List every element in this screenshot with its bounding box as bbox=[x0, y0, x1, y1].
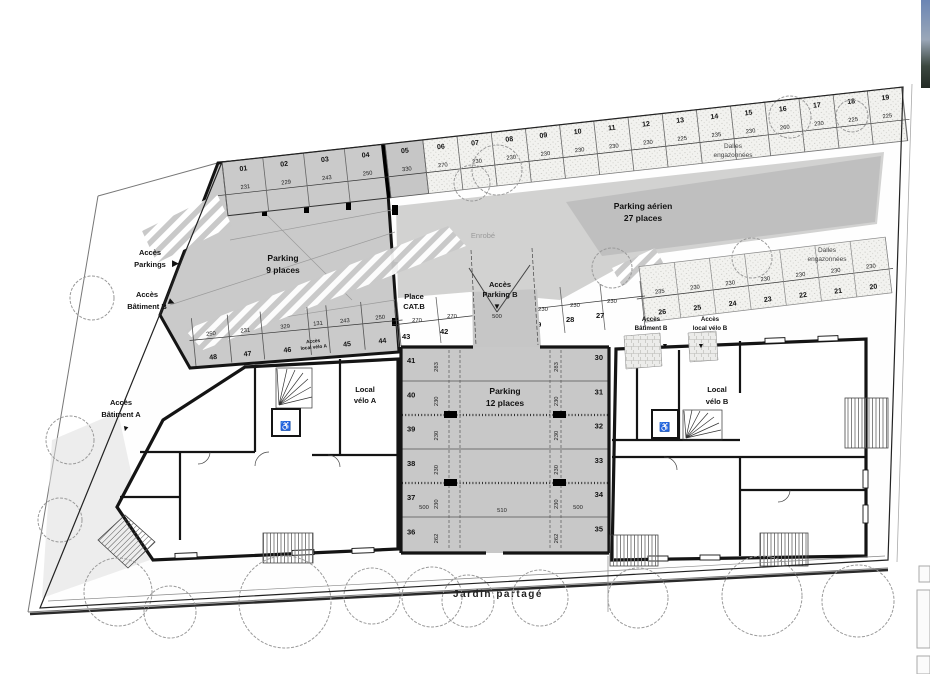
place-catb-label: CAT.B bbox=[403, 302, 425, 311]
parking9-label: Parking bbox=[267, 253, 298, 263]
parking-space-dim: 243 bbox=[322, 175, 332, 182]
parking-space-number: 08 bbox=[505, 136, 514, 144]
acces-batiment-b-arrow-icon: ▼ bbox=[662, 343, 669, 350]
local-velo-a-label: vélo A bbox=[354, 396, 377, 405]
acces-local-velo-b-arrow-icon: ▼ bbox=[698, 343, 705, 350]
parking-space-dim: 231 bbox=[240, 184, 250, 191]
parking-space-dim: 270 bbox=[412, 318, 422, 324]
parking-space-number: 24 bbox=[728, 300, 737, 308]
garage-dim: 500 bbox=[573, 505, 583, 511]
parking-space-dim: 230 bbox=[434, 396, 440, 406]
parking-space-number: 47 bbox=[243, 351, 252, 359]
parking-space-number: 31 bbox=[595, 387, 603, 396]
terrace-b-south-1 bbox=[610, 535, 658, 566]
acces-parkings-label: Accès bbox=[139, 248, 161, 257]
parking-space-dim: 329 bbox=[280, 324, 290, 331]
parking-space-number: 36 bbox=[407, 528, 415, 537]
terrace-b-east bbox=[845, 398, 888, 448]
parking-space-dim: 230 bbox=[575, 147, 585, 154]
parking-space-number: 12 bbox=[642, 121, 651, 129]
parking-space-number: 15 bbox=[744, 109, 753, 117]
parking-space-number: 06 bbox=[437, 143, 446, 151]
parking-space-number: 16 bbox=[779, 106, 788, 114]
parking-space-dim: 131 bbox=[313, 321, 323, 328]
parking-space-dim: 230 bbox=[554, 431, 560, 441]
parking-space-dim: 283 bbox=[554, 362, 560, 372]
place-catb-label: Place bbox=[404, 292, 424, 301]
parking9-label: 9 places bbox=[266, 265, 300, 275]
parking-space-number: 02 bbox=[280, 161, 289, 169]
parking-space-dim: 262 bbox=[554, 534, 560, 544]
parking-aerien-label: Parking aérien bbox=[614, 201, 673, 211]
parking-space-number: 07 bbox=[471, 140, 480, 148]
parking-space-number: 43 bbox=[402, 332, 410, 341]
parking-space-number: 17 bbox=[813, 102, 822, 110]
parking-space-number: 23 bbox=[764, 296, 773, 304]
parking-space-dim: 230 bbox=[554, 499, 560, 509]
parking-space-dim: 260 bbox=[780, 125, 790, 132]
parking-space-dim: 225 bbox=[848, 117, 858, 124]
parking-space-dim: 250 bbox=[375, 315, 385, 322]
parking12-label: Parking bbox=[489, 386, 520, 396]
garage-dim: 500 bbox=[419, 505, 429, 511]
parking-space-number: 39 bbox=[407, 425, 415, 434]
enrobe-label: Enrobé bbox=[471, 231, 495, 240]
terrace-a-south bbox=[263, 533, 313, 563]
parking-space-number: 05 bbox=[401, 147, 410, 155]
parking-space-number: 25 bbox=[693, 304, 702, 312]
acces-local-velo-b-label: Accès bbox=[701, 316, 720, 323]
ramp-dim: 500 bbox=[492, 314, 502, 320]
parking-space-number: 18 bbox=[847, 98, 856, 106]
parking-space-number: 38 bbox=[407, 459, 415, 468]
parking-space-number: 14 bbox=[710, 113, 719, 121]
parking-space-dim: 230 bbox=[607, 299, 617, 305]
parking-space-dim: 230 bbox=[554, 465, 560, 475]
parking-space-dim: 230 bbox=[814, 121, 824, 128]
parking-space-number: 32 bbox=[595, 422, 603, 431]
parking-space-dim: 250 bbox=[206, 331, 216, 338]
acces-batiment-b-small-label: Bâtiment B bbox=[635, 325, 668, 332]
acces-parkings-arrow-icon: ▶ bbox=[172, 258, 179, 268]
parking-space-number: 33 bbox=[595, 456, 603, 465]
parking-space-number: 19 bbox=[881, 94, 890, 102]
parking-space-dim: 250 bbox=[363, 171, 373, 178]
parking-space-dim: 230 bbox=[831, 268, 841, 275]
dalles-label-1: engazonnées bbox=[713, 152, 753, 159]
acces-parking-b-label: Accès bbox=[489, 280, 511, 289]
parking-space-dim: 230 bbox=[506, 155, 516, 162]
parking-space-number: 01 bbox=[239, 165, 248, 173]
parking12-label: 12 places bbox=[486, 398, 525, 408]
parking-aerien-label: 27 places bbox=[624, 213, 663, 223]
parking-space-number: 28 bbox=[566, 315, 574, 324]
parking-space-dim: 230 bbox=[690, 284, 700, 291]
parking-space-dim: 225 bbox=[882, 113, 892, 120]
parking-space-number: 41 bbox=[407, 356, 415, 365]
parking-space-dim: 330 bbox=[402, 166, 412, 173]
dalles-label-2: Dalles bbox=[818, 247, 837, 254]
parking-space-dim: 230 bbox=[760, 276, 770, 283]
parking-space-number: 03 bbox=[321, 156, 330, 164]
parking-space-dim: 243 bbox=[340, 318, 350, 325]
local-velo-a-label: Local bbox=[355, 385, 375, 394]
wheelchair-icon: ♿ bbox=[659, 421, 670, 432]
parking-space-number: 30 bbox=[595, 353, 603, 362]
parking-space-number: 35 bbox=[595, 525, 603, 534]
parking-space-number: 48 bbox=[209, 354, 218, 362]
parking-space-dim: 270 bbox=[447, 314, 457, 320]
parking-space-dim: 230 bbox=[434, 465, 440, 475]
central-garage: 4128330283402303123039230322303823033230… bbox=[401, 347, 609, 553]
parking-space-dim: 230 bbox=[570, 303, 580, 309]
gallery-thumbnail-edges[interactable] bbox=[917, 566, 930, 674]
parking-space-dim: 230 bbox=[866, 264, 876, 271]
parking-space-dim: 262 bbox=[434, 534, 440, 544]
local-velo-b-label: Local bbox=[707, 385, 727, 394]
acces-batiment-b-small-label: Accès bbox=[642, 316, 661, 323]
acces-batiment-a-label: Accès bbox=[110, 398, 132, 407]
parking-space-dim: 283 bbox=[434, 362, 440, 372]
parking-space-number: 34 bbox=[595, 490, 604, 499]
acces-local-velo-b-label: local vélo B bbox=[693, 325, 728, 332]
parking-space-dim: 230 bbox=[609, 143, 619, 150]
acces-parkings-label: Parkings bbox=[134, 260, 166, 269]
acces-batiment-a-label: Bâtiment A bbox=[101, 410, 141, 419]
site-plan-drawing: 0123102229032430425005330062700723008230… bbox=[0, 0, 930, 674]
terrace-b-south-2 bbox=[760, 533, 808, 566]
parking-space-dim: 225 bbox=[677, 136, 687, 143]
acces-parking-b-label: Parking B bbox=[482, 290, 518, 299]
entrance-path-batiment-b bbox=[624, 333, 662, 369]
parking-space-dim: 270 bbox=[438, 162, 448, 169]
parking-space-dim: 231 bbox=[240, 328, 250, 335]
parking-space-dim: 230 bbox=[538, 307, 548, 313]
parking-space-number: 45 bbox=[343, 341, 352, 349]
elevator-b: ♿ bbox=[652, 410, 678, 438]
parking-space-number: 27 bbox=[596, 311, 604, 320]
parking-space-dim: 229 bbox=[281, 180, 291, 187]
parking-space-number: 42 bbox=[440, 327, 448, 336]
parking-space-dim: 230 bbox=[643, 140, 653, 147]
elevator-a: ♿ bbox=[272, 409, 300, 436]
parking-space-number: 10 bbox=[573, 128, 582, 136]
parking-space-number: 11 bbox=[608, 125, 616, 133]
parking-space-dim: 230 bbox=[554, 396, 560, 406]
parking-space-number: 44 bbox=[378, 338, 387, 346]
acces-batiment-b-street-label: Accès bbox=[136, 290, 158, 299]
parking-space-dim: 235 bbox=[711, 132, 721, 139]
floor-plan-svg: 0123102229032430425005330062700723008230… bbox=[0, 0, 930, 674]
parking-space-number: 37 bbox=[407, 493, 415, 502]
parking-space-dim: 230 bbox=[746, 128, 756, 135]
jardin-partage-label: Jardin partagé bbox=[453, 589, 543, 600]
wheelchair-icon: ♿ bbox=[280, 420, 291, 431]
parking-space-dim: 230 bbox=[725, 280, 735, 287]
gallery-photo-thumbnail-edge[interactable] bbox=[921, 0, 930, 88]
parking-space-number: 20 bbox=[869, 283, 878, 291]
parking-space-dim: 235 bbox=[655, 289, 665, 296]
parking-space-number: 13 bbox=[676, 117, 685, 125]
dalles-label-2: engazonnées bbox=[807, 256, 847, 263]
parking-space-dim: 230 bbox=[540, 151, 550, 158]
parking-space-dim: 230 bbox=[795, 272, 805, 279]
parking-space-number: 21 bbox=[834, 288, 843, 296]
parking-space-dim: 230 bbox=[434, 499, 440, 509]
parking-space-number: 09 bbox=[539, 132, 548, 140]
parking-space-number: 04 bbox=[361, 152, 370, 160]
parking-space-number: 46 bbox=[283, 347, 292, 355]
local-velo-b-label: vélo B bbox=[706, 397, 729, 406]
ramp-down-arrow-icon: ▼ bbox=[493, 302, 501, 311]
parking-space-dim: 230 bbox=[434, 431, 440, 441]
dalles-label-1: Dalles bbox=[724, 143, 743, 150]
garage-dim: 510 bbox=[497, 508, 507, 514]
parking-space-number: 40 bbox=[407, 390, 415, 399]
building-b: ♿ Local vélo B bbox=[610, 331, 888, 566]
parking-space-number: 22 bbox=[799, 292, 808, 300]
